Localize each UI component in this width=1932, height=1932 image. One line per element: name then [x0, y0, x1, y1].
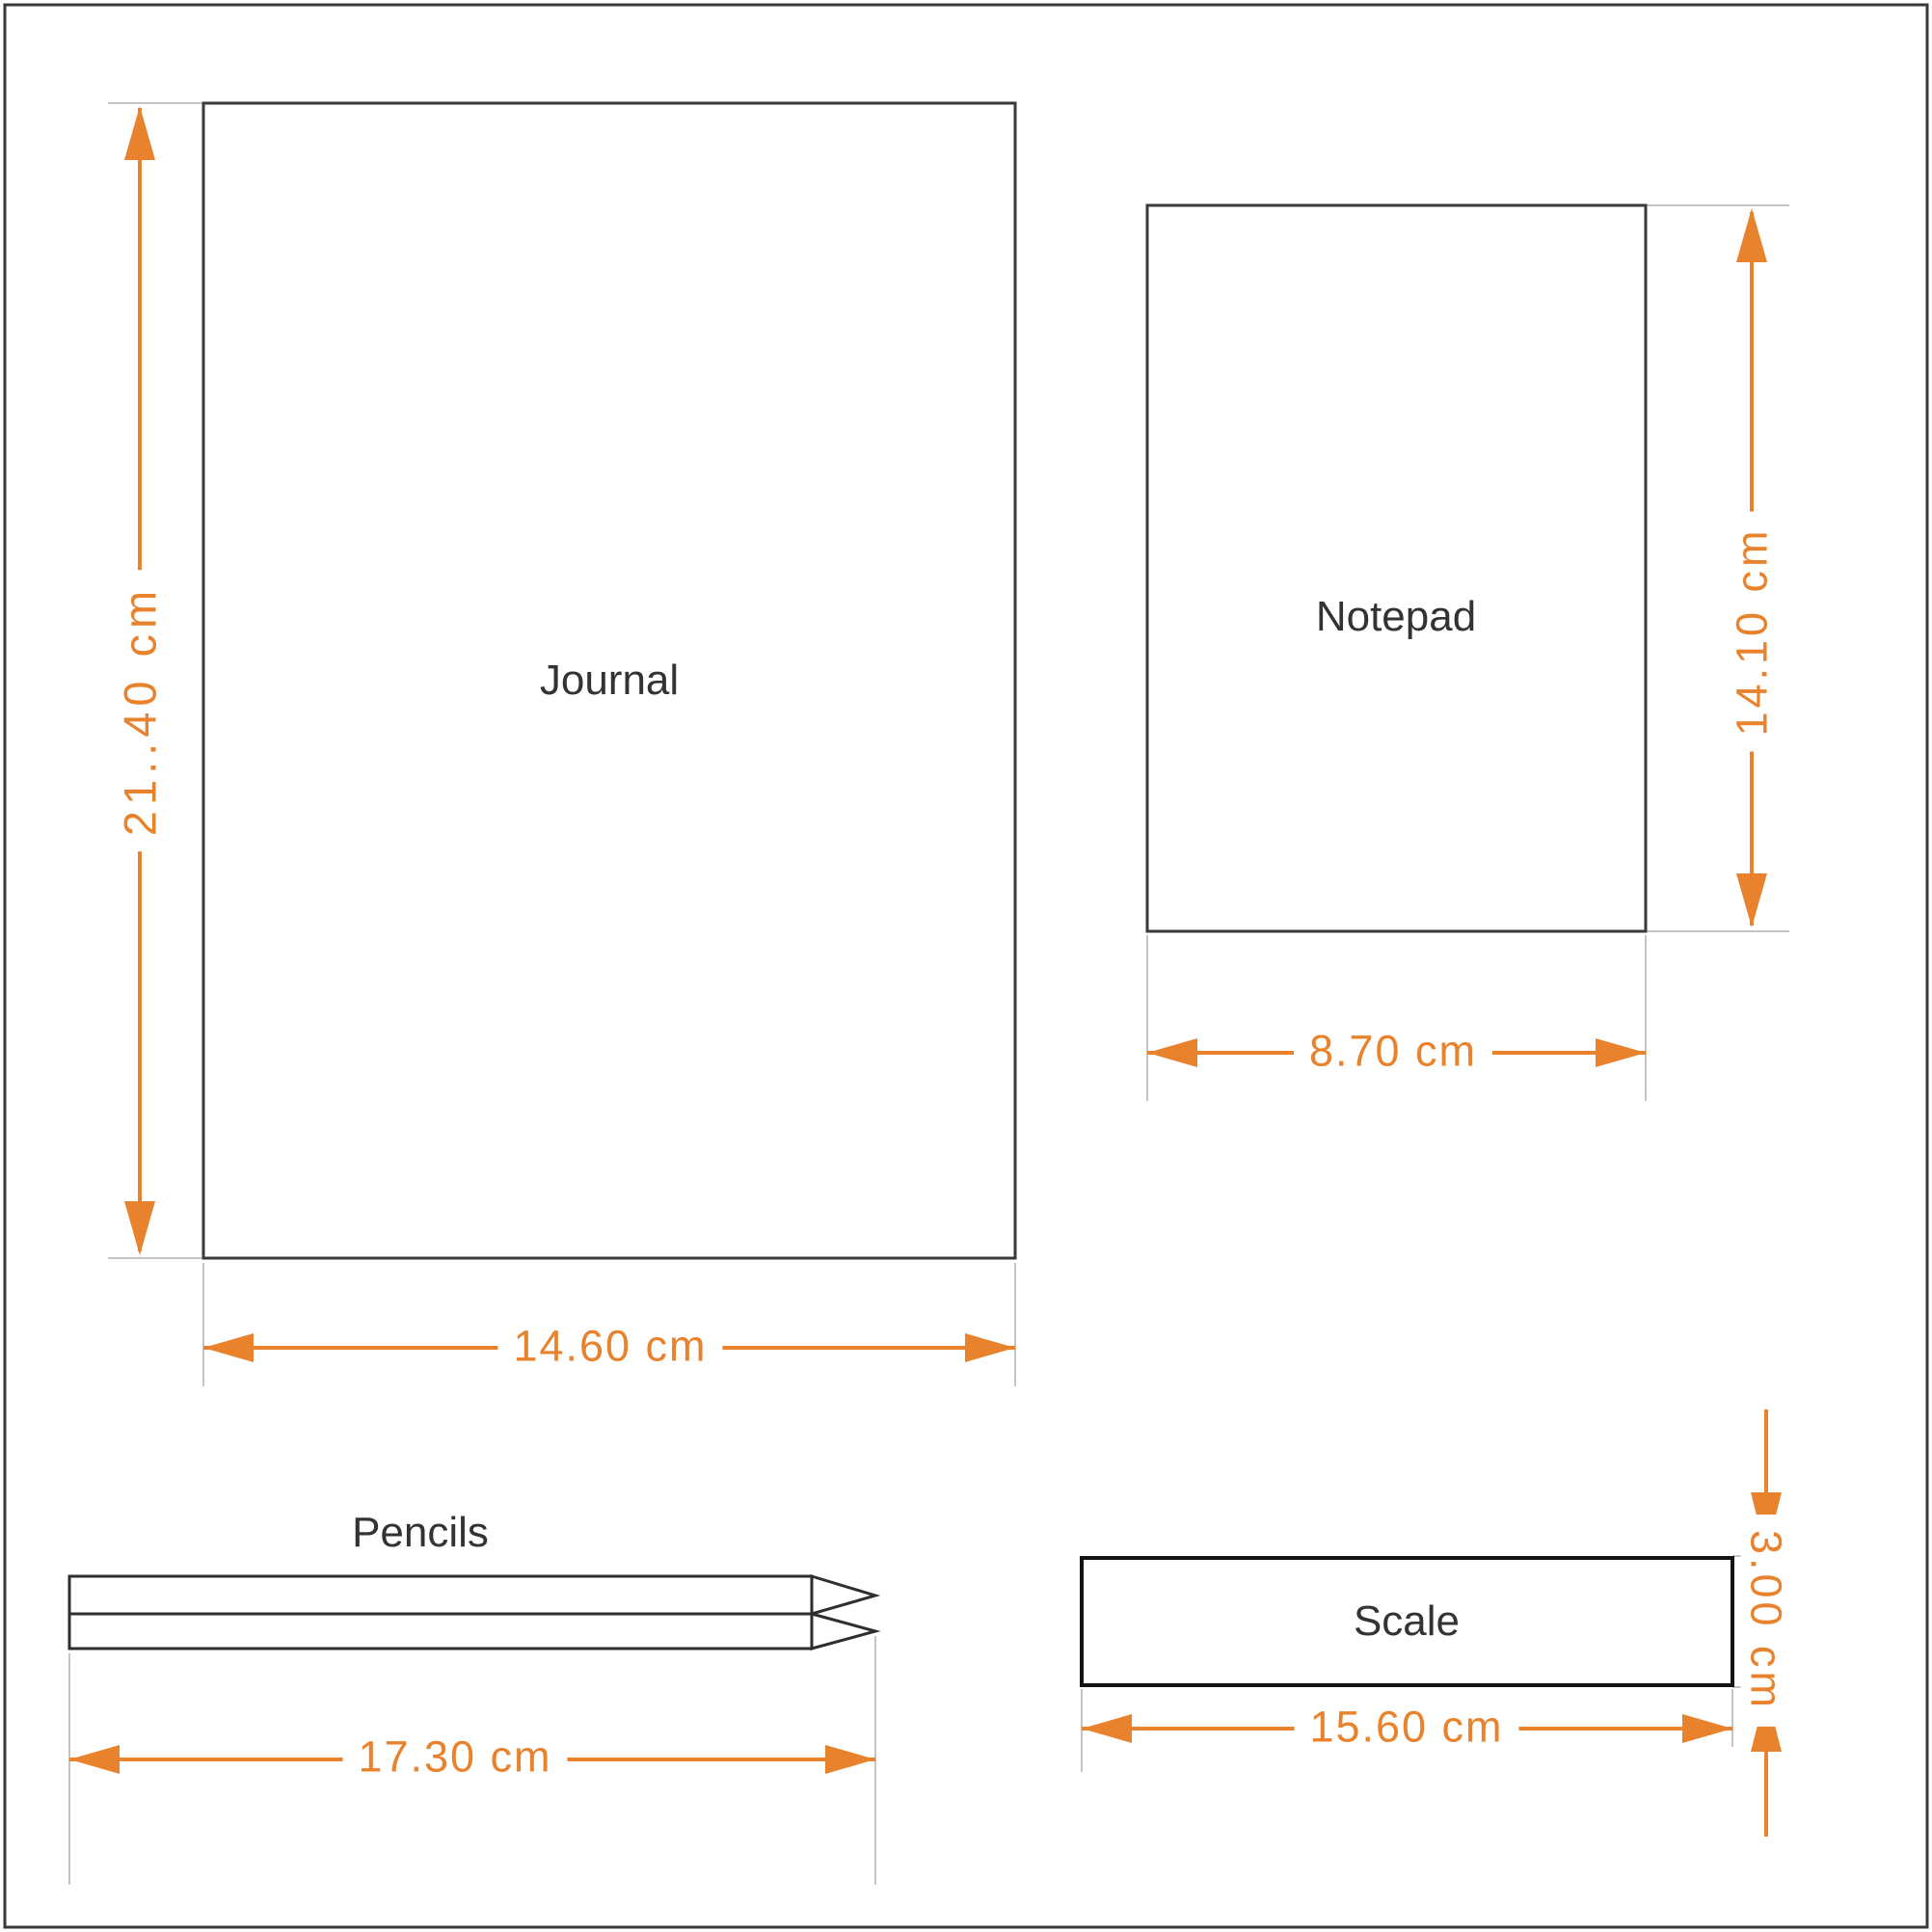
pencils-label: Pencils — [352, 1512, 489, 1554]
notepad-arrow-down-icon — [1736, 873, 1767, 927]
scale-height-dimension-label: 3.00 cm — [1741, 1515, 1792, 1727]
journal-arrow-left-icon — [203, 1333, 254, 1362]
pencils-length-dimension-label: 17.30 cm — [342, 1731, 567, 1783]
pencil-bottom-tip — [812, 1614, 875, 1649]
notepad-label: Notepad — [1316, 596, 1476, 638]
scale-label: Scale — [1354, 1600, 1460, 1643]
pencil-top-body — [69, 1576, 812, 1614]
pencils-arrow-right-icon — [825, 1745, 875, 1774]
scale-width-dimension-label: 15.60 cm — [1294, 1702, 1518, 1753]
pencil-top-tip — [812, 1576, 875, 1614]
pencils-shape — [69, 1576, 875, 1649]
notepad-width-dimension-label: 8.70 cm — [1294, 1026, 1492, 1077]
journal-arrow-down-icon — [124, 1201, 155, 1255]
notepad-arrow-up-icon — [1736, 208, 1767, 262]
journal-width-dimension-label: 14.60 cm — [497, 1321, 722, 1372]
pencils-arrow-left-icon — [69, 1745, 120, 1774]
notepad-arrow-right-icon — [1596, 1038, 1646, 1067]
notepad-rect — [1147, 205, 1646, 931]
journal-height-dimension-label: 21..40 cm — [114, 570, 167, 851]
drawing-canvas: Journal Notepad Pencils Scale 21..40 cm … — [0, 0, 1932, 1932]
notepad-arrow-left-icon — [1147, 1038, 1197, 1067]
journal-arrow-right-icon — [965, 1333, 1015, 1362]
scale-arrow-left-icon — [1082, 1714, 1132, 1743]
pencil-bottom-body — [69, 1614, 812, 1649]
journal-label: Journal — [540, 659, 679, 702]
journal-arrow-up-icon — [124, 106, 155, 160]
drawing-linework — [0, 0, 1932, 1932]
notepad-height-dimension-label: 14.10 cm — [1727, 511, 1778, 751]
scale-arrow-right-icon — [1682, 1714, 1732, 1743]
